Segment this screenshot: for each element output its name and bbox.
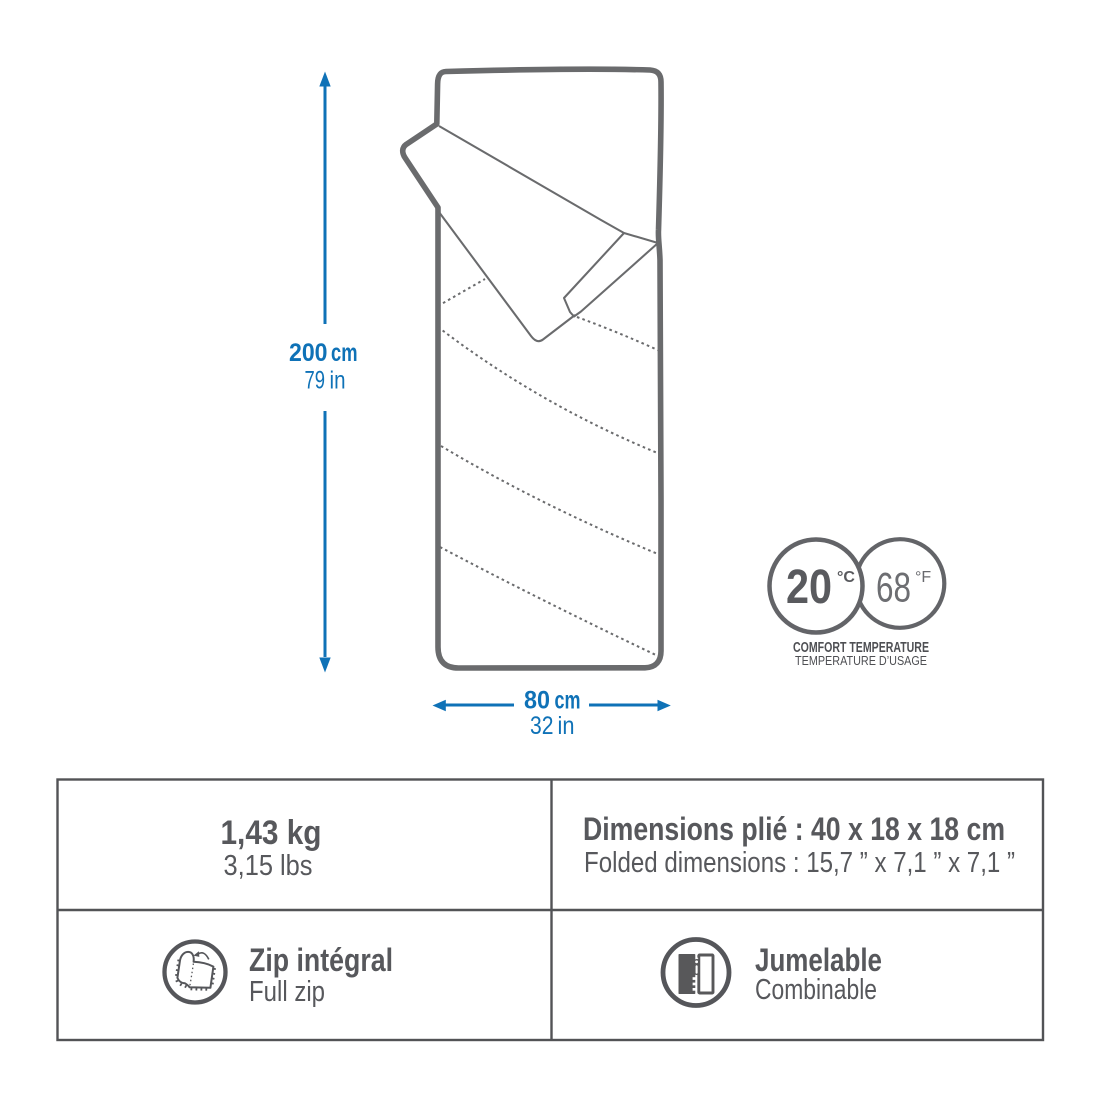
svg-text:80: 80 — [524, 687, 550, 715]
svg-text:°C: °C — [837, 569, 855, 586]
svg-text:Full zip: Full zip — [249, 976, 325, 1008]
svg-text:200: 200 — [289, 339, 328, 367]
svg-text:Zip intégral: Zip intégral — [249, 942, 393, 978]
svg-text:79: 79 — [305, 367, 326, 395]
svg-text:°F: °F — [915, 569, 931, 586]
svg-text:32: 32 — [530, 712, 554, 740]
svg-text:1,43 kg: 1,43 kg — [221, 814, 322, 852]
svg-text:cm: cm — [331, 339, 358, 367]
svg-text:3,15 lbs: 3,15 lbs — [224, 850, 313, 882]
svg-text:Dimensions plié : 40 x 18 x 18: Dimensions plié : 40 x 18 x 18 cm — [583, 811, 1005, 847]
svg-text:Combinable: Combinable — [755, 974, 877, 1006]
svg-text:Jumelable: Jumelable — [755, 942, 882, 978]
svg-text:in: in — [558, 712, 575, 740]
svg-text:20: 20 — [786, 561, 832, 614]
svg-text:TEMPERATURE D’USAGE: TEMPERATURE D’USAGE — [795, 653, 927, 668]
svg-text:in: in — [330, 367, 346, 395]
svg-text:cm: cm — [555, 687, 581, 715]
svg-text:68: 68 — [876, 564, 911, 611]
svg-text:Folded dimensions : 15,7 ” x 7: Folded dimensions : 15,7 ” x 7,1 ” x 7,1… — [584, 847, 1015, 879]
